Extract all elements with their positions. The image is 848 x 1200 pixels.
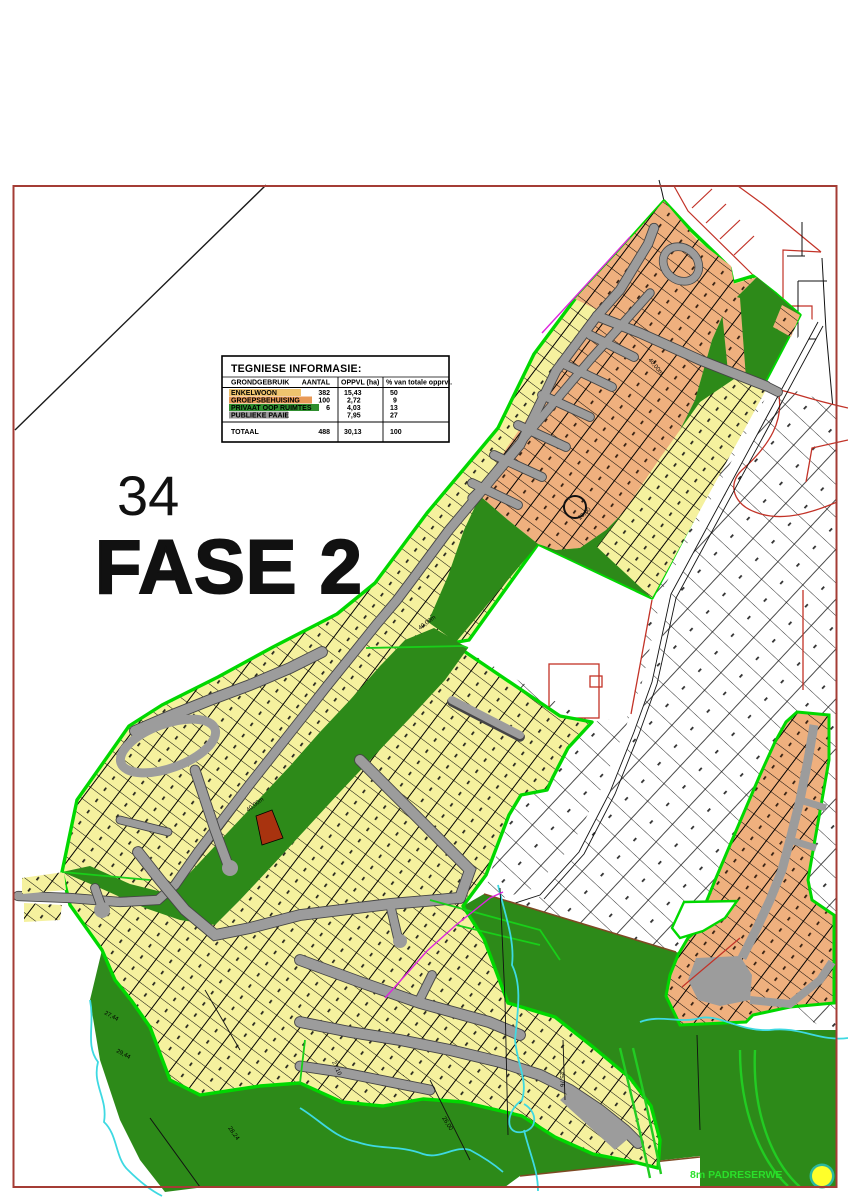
svg-text:PRIVAAT OOP RUIMTES: PRIVAAT OOP RUIMTES — [231, 405, 312, 412]
svg-text:% van totale opprvl.: % van totale opprvl. — [386, 380, 452, 387]
svg-text:100: 100 — [318, 398, 330, 405]
svg-text:7,95: 7,95 — [347, 413, 361, 420]
svg-text:FASE 2: FASE 2 — [95, 525, 363, 610]
svg-text:9: 9 — [393, 398, 397, 405]
svg-text:27: 27 — [390, 413, 398, 420]
svg-text:TEGNIESE INFORMASIE:: TEGNIESE INFORMASIE: — [231, 363, 362, 375]
svg-text:4,03: 4,03 — [347, 405, 361, 412]
svg-text:TOTAAL: TOTAAL — [231, 429, 259, 436]
svg-text:GRONDGEBRUIK: GRONDGEBRUIK — [231, 380, 289, 387]
svg-text:6: 6 — [326, 405, 330, 412]
svg-text:382: 382 — [318, 390, 330, 397]
svg-text:8m PADRESERWE: 8m PADRESERWE — [690, 1169, 782, 1181]
svg-text:25,76: 25,76 — [558, 1072, 565, 1088]
svg-text:488: 488 — [318, 429, 330, 436]
svg-text:15,43: 15,43 — [344, 390, 362, 397]
svg-text:13: 13 — [390, 405, 398, 412]
svg-text:2,72: 2,72 — [347, 398, 361, 405]
svg-text:PUBLIEKE PAAIE: PUBLIEKE PAAIE — [231, 413, 290, 420]
svg-text:AANTAL: AANTAL — [302, 380, 331, 387]
svg-text:34: 34 — [117, 464, 179, 527]
svg-text:GROEPSBEHUISING: GROEPSBEHUISING — [231, 398, 300, 405]
svg-text:OPPVL (ha): OPPVL (ha) — [341, 380, 379, 387]
svg-text:100: 100 — [390, 429, 402, 436]
svg-text:ENKELWOON: ENKELWOON — [231, 390, 277, 397]
svg-text:30,13: 30,13 — [344, 429, 362, 436]
svg-text:50: 50 — [390, 390, 398, 397]
